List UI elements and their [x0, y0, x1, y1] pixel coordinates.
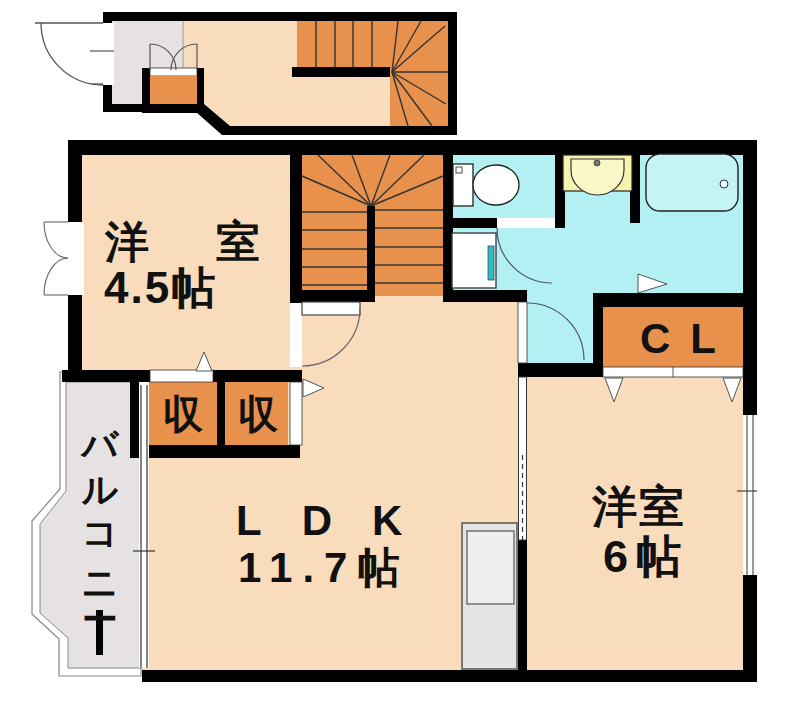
- storage-right-track: [290, 382, 302, 445]
- room-label-storage-right: 収: [238, 394, 278, 434]
- door-opening-west-small: [290, 303, 302, 367]
- bathtub-icon: [646, 154, 738, 211]
- washing-machine-pan: [452, 233, 496, 288]
- room-label-western-large-name: 洋室: [592, 484, 686, 529]
- door-leaf-west-small: [302, 302, 360, 315]
- washroom-door-opening: [518, 302, 527, 363]
- vanity-sink-icon: [563, 155, 632, 195]
- upper-entry-block: [35, 12, 457, 135]
- room-label-closet: CL: [640, 318, 736, 360]
- upper-stairs-wall: [292, 67, 390, 77]
- toilet-icon: [453, 164, 519, 206]
- room-label-western-small-name: 洋室: [105, 220, 327, 264]
- entry-door-opening: [101, 23, 114, 85]
- room-label-western-large-size: 6帖: [603, 534, 689, 579]
- entry-door-swing: [35, 23, 103, 85]
- room-label-balcony: バルコニー: [82, 404, 118, 608]
- entry-shoe-closet: [150, 76, 197, 104]
- toilet-door-opening: [497, 218, 555, 228]
- room-label-ldk-size: 11.7帖: [238, 547, 409, 589]
- storage-left-track: [150, 370, 213, 382]
- balcony-divider-panel: [96, 610, 103, 655]
- casement-window-arcs: [44, 222, 68, 295]
- room-label-western-small-size: 4.5帖: [104, 266, 217, 310]
- floorplan-canvas: 洋室 4.5帖 LDK 11.7帖 洋室 6帖 CL 収 収 バルコニー: [0, 0, 800, 708]
- window-west-small: [66, 222, 84, 295]
- room-label-storage-left: 収: [163, 394, 203, 434]
- room-label-ldk-name: LDK: [236, 500, 442, 542]
- kitchen-counter: [462, 523, 517, 669]
- entry-closet-track: [150, 68, 197, 76]
- window-east-large: [743, 415, 757, 575]
